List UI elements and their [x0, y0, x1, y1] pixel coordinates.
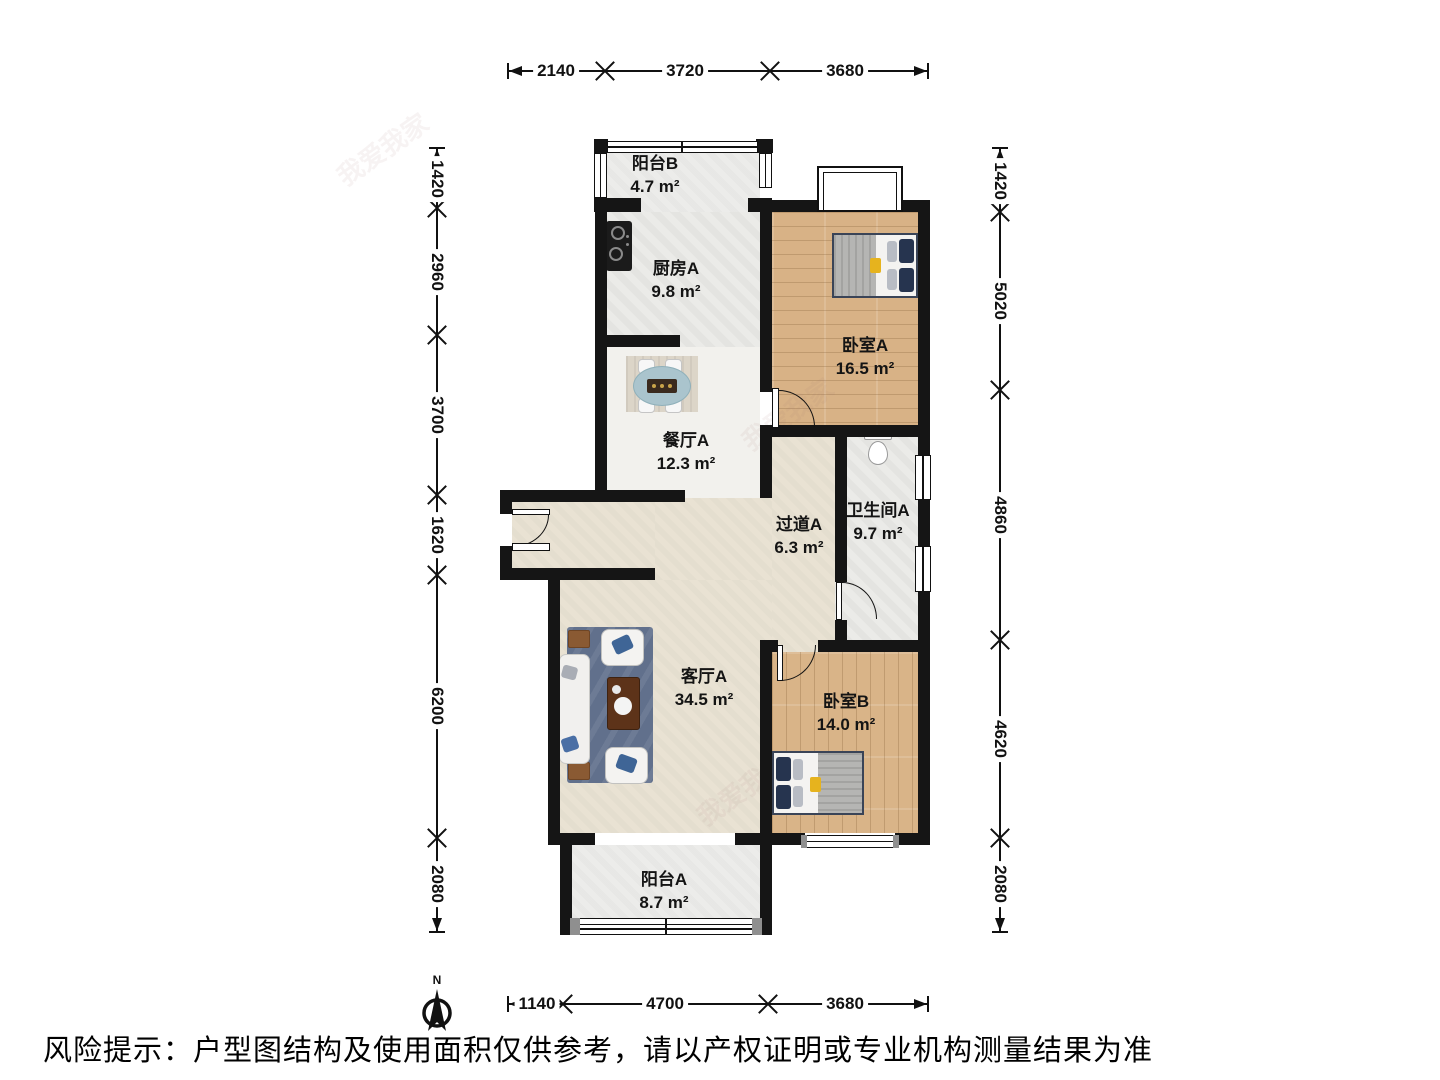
dimension-label: 3720: [662, 61, 708, 81]
wall-segment: [918, 212, 930, 455]
furniture-part: [899, 239, 914, 263]
wall-segment: [500, 490, 512, 514]
wall-segment: [595, 198, 641, 212]
wall-segment: [918, 592, 930, 845]
dimension-label: 1420: [427, 156, 447, 202]
watermark-brand: 我爱我家: [329, 104, 435, 194]
wall-segment: [760, 640, 778, 652]
floorplan-canvas: 我爱我家 我爱我家 我爱我家 58同城: [0, 0, 1440, 1080]
north-label: N: [413, 974, 461, 986]
dimension-label: 1620: [427, 512, 447, 558]
wall-segment: [760, 200, 772, 392]
wall-segment: [756, 139, 773, 153]
compass: N: [413, 974, 461, 1035]
furniture-part: [887, 241, 897, 262]
dimension-label: 6200: [427, 683, 447, 729]
dim-arrow: [914, 999, 927, 1009]
dimension-label: 2140: [533, 61, 579, 81]
window: [915, 546, 931, 592]
window-post: [893, 835, 899, 848]
furniture-part: [568, 762, 590, 780]
furniture-part: [870, 258, 881, 273]
wall-segment: [500, 490, 685, 502]
dimension-label: 5020: [990, 278, 1010, 324]
door-leaf: [512, 543, 550, 551]
stove-icon: [606, 221, 632, 271]
furniture-part: [776, 785, 791, 809]
furniture-part: [660, 384, 664, 388]
open-zone-floor: [655, 498, 772, 580]
bed-icon-bedroom-a: [832, 233, 918, 298]
dim-endbar: [992, 931, 1008, 933]
dimension-label: 3700: [427, 392, 447, 438]
furniture-part: [899, 268, 914, 292]
dimension-label: 3680: [822, 994, 868, 1014]
wall-segment: [760, 652, 772, 833]
dim-line: [999, 148, 1001, 932]
dim-endbar: [927, 63, 929, 79]
dim-endbar: [927, 996, 929, 1012]
furniture-part: [612, 685, 621, 694]
risk-disclaimer-text: 风险提示：户型图结构及使用面积仅供参考，请以产权证明或专业机构测量结果为准: [43, 1027, 1153, 1069]
window: [759, 153, 772, 188]
wall-segment: [665, 918, 667, 935]
dim-endbar: [429, 931, 445, 933]
dimension-label: 2960: [427, 249, 447, 295]
furniture-part: [868, 441, 888, 465]
furniture-part: [626, 235, 629, 238]
furniture-part: [609, 247, 623, 261]
wall-segment: [835, 437, 847, 582]
room-bathroom-floor: [835, 437, 918, 652]
furniture-part: [810, 777, 821, 792]
room-label-dining: 餐厅A 12.3 m²: [657, 430, 716, 474]
wall-segment: [595, 335, 680, 347]
furniture-part: [652, 384, 656, 388]
window-post: [570, 918, 580, 935]
room-label-hallway: 过道A 6.3 m²: [774, 514, 823, 558]
dimension-label: 4860: [990, 492, 1010, 538]
room-label-balcony-b: 阳台B 4.7 m²: [630, 153, 679, 197]
dimension-label: 1140: [515, 994, 560, 1014]
bed-icon-bedroom-b: [772, 751, 864, 815]
door-leaf: [772, 388, 779, 428]
window-post: [752, 918, 762, 935]
dim-arrow: [509, 66, 522, 76]
window-post: [801, 835, 807, 848]
dimension-label: 1420: [990, 158, 1010, 204]
wall-segment: [918, 500, 930, 546]
dimension-label: 4620: [990, 716, 1010, 762]
furniture-part: [668, 384, 672, 388]
window: [594, 153, 607, 198]
furniture-part: [887, 269, 897, 290]
furniture-part: [793, 786, 803, 807]
furniture-part: [818, 753, 862, 813]
furniture-part: [614, 697, 632, 715]
furniture-part: [626, 243, 629, 246]
room-label-bedroom-a: 卧室A 16.5 m²: [836, 335, 895, 379]
room-label-living: 客厅A 34.5 m²: [675, 666, 734, 710]
furniture-part: [568, 630, 590, 648]
furniture-part: [793, 759, 803, 780]
dim-arrow: [995, 918, 1005, 931]
wall-segment: [760, 425, 772, 498]
wall-segment: [755, 200, 820, 212]
furniture-part: [611, 226, 625, 240]
wall-segment: [595, 212, 607, 502]
bay-window: [817, 166, 903, 212]
dimension-label: 2080: [990, 861, 1010, 907]
room-label-bedroom-b: 卧室B 14.0 m²: [817, 691, 876, 735]
dimension-label: 4700: [642, 994, 688, 1014]
wall-segment: [818, 640, 930, 652]
dimension-label: 2080: [427, 861, 447, 907]
wall-segment: [548, 568, 655, 580]
room-label-balcony-a: 阳台A 8.7 m²: [639, 869, 688, 913]
wall-segment: [895, 833, 930, 845]
window: [915, 455, 931, 500]
dimension-label: 3680: [822, 61, 868, 81]
room-label-bathroom: 卫生间A 9.7 m²: [846, 500, 909, 544]
wall-segment: [681, 141, 683, 153]
wall-segment: [594, 139, 608, 153]
window: [805, 835, 895, 848]
dim-arrow: [432, 918, 442, 931]
dim-arrow: [914, 66, 927, 76]
wall-segment: [548, 568, 560, 845]
wall-segment: [760, 833, 805, 845]
furniture-part: [776, 757, 791, 781]
wall-segment: [548, 833, 595, 845]
room-label-kitchen: 厨房A 9.8 m²: [651, 258, 700, 302]
